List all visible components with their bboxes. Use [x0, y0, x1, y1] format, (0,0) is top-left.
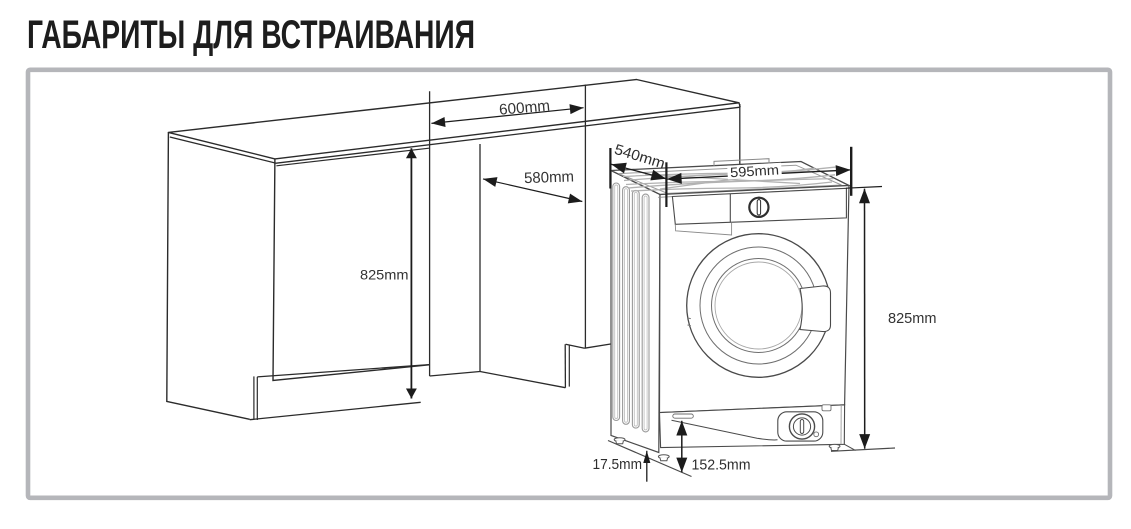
svg-text:580mm: 580mm — [524, 168, 575, 187]
svg-text:152.5mm: 152.5mm — [692, 458, 751, 474]
svg-text:17.5mm: 17.5mm — [593, 457, 643, 473]
svg-text:825mm: 825mm — [360, 268, 409, 283]
svg-text:ГАБАРИТЫ ДЛЯ ВСТРАИВАНИЯ: ГАБАРИТЫ ДЛЯ ВСТРАИВАНИЯ — [27, 13, 475, 57]
svg-text:595mm: 595mm — [730, 162, 780, 180]
svg-text:825mm: 825mm — [888, 310, 937, 327]
